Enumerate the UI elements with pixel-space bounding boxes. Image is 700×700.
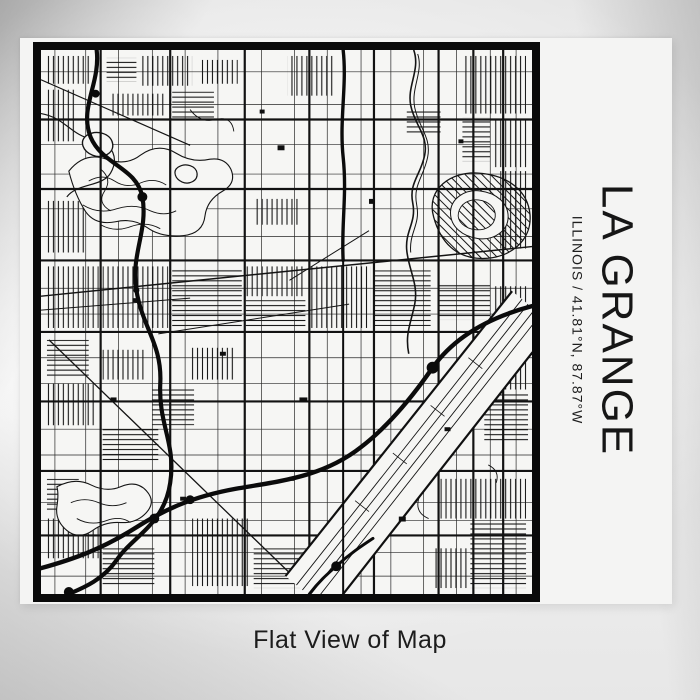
page-background: { "poster": { "title": "LA GRANGE", "sub… (0, 0, 700, 700)
map-frame (33, 42, 540, 602)
poster-subtitle: ILLINOIS / 41.81°N, 87.87°W (570, 184, 586, 456)
view-caption: Flat View of Map (0, 626, 700, 655)
map-graphic (41, 50, 532, 594)
poster-title: LA GRANGE (595, 184, 639, 456)
poster-paper: LA GRANGE ILLINOIS / 41.81°N, 87.87°W (20, 38, 672, 604)
poster-side-text: LA GRANGE ILLINOIS / 41.81°N, 87.87°W (570, 184, 639, 456)
